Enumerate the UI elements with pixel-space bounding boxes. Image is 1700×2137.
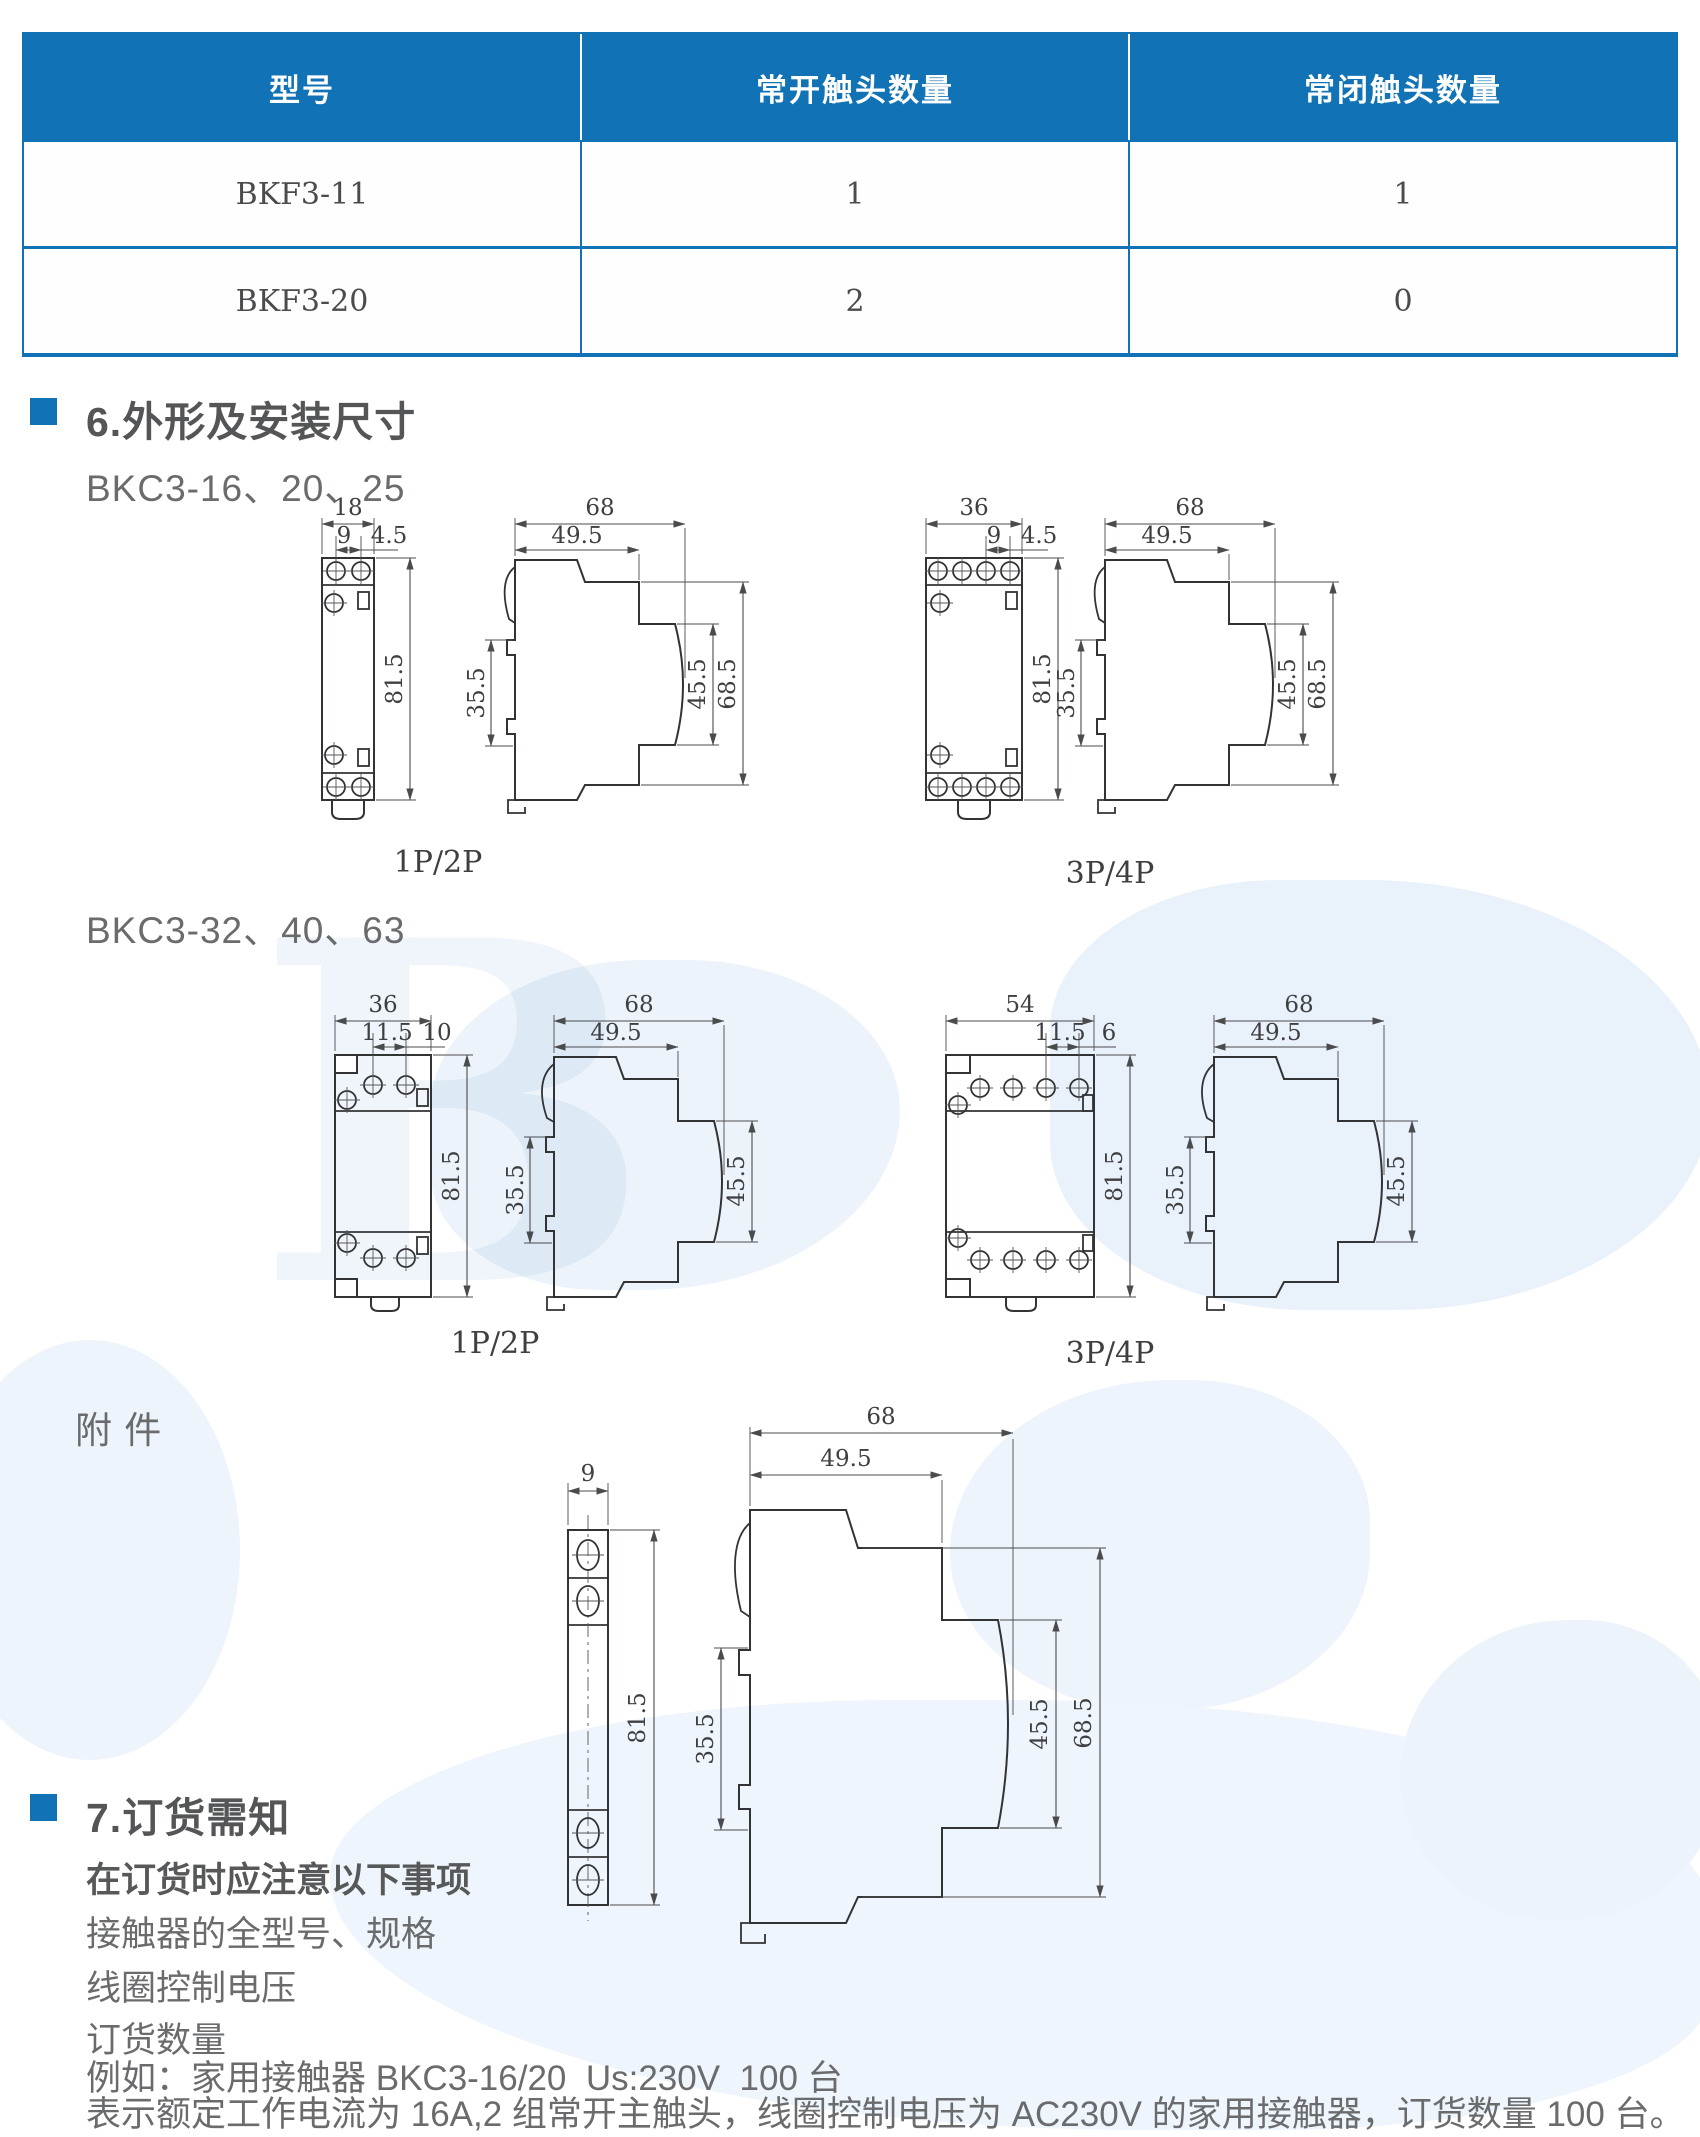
svg-text:45.5: 45.5	[1275, 658, 1301, 709]
section6-title: 6.外形及安装尺寸	[86, 388, 416, 448]
group1-label: BKC3-16、20、25	[86, 458, 405, 512]
table-row: BKF3-11 1 1	[24, 140, 1676, 246]
svg-text:81.5: 81.5	[382, 653, 408, 704]
contact-count-table: 型号 常开触头数量 常闭触头数量 BKF3-11 1 1 BKF3-20 2 0	[22, 32, 1678, 357]
svg-text:54: 54	[1005, 992, 1034, 1018]
svg-text:9: 9	[987, 523, 1002, 549]
svg-text:45.5: 45.5	[1384, 1155, 1410, 1206]
cell-no: 2	[582, 249, 1130, 353]
caption-3p4p: 3P/4P	[1035, 1336, 1185, 1371]
front-view: 54 11.5 6 81.5	[945, 992, 1136, 1311]
svg-text:35.5: 35.5	[1054, 667, 1080, 718]
header-nc-contacts: 常闭触头数量	[1130, 34, 1676, 140]
svg-text:68.5: 68.5	[1305, 658, 1331, 709]
svg-text:4.5: 4.5	[371, 523, 408, 549]
front-view: 36 9 4.5 81.5	[925, 495, 1064, 819]
drawing-bkc3-16-3p4p: 36 9 4.5 81.5 68 49.5 35.5 45.5 68.5	[890, 488, 1490, 848]
accessory-label: 附 件	[75, 1400, 162, 1454]
drawing-bkc3-32-1p2p: 36 11.5 10 81.5 68 49.5 35.5 45.5	[230, 965, 850, 1345]
svg-text:68: 68	[1284, 992, 1313, 1018]
table-header-row: 型号 常开触头数量 常闭触头数量	[24, 34, 1676, 140]
svg-text:49.5: 49.5	[1250, 1020, 1301, 1046]
svg-text:4.5: 4.5	[1021, 523, 1058, 549]
svg-text:49.5: 49.5	[590, 1020, 641, 1046]
svg-text:81.5: 81.5	[439, 1150, 465, 1201]
section6-bullet	[30, 398, 57, 425]
front-view: 18 9 4.5 81.5	[321, 495, 416, 819]
svg-text:45.5: 45.5	[685, 658, 711, 709]
caption-1p2p: 1P/2P	[363, 845, 513, 880]
svg-text:36: 36	[368, 992, 397, 1018]
ordering-item: 接触器的全型号、规格	[86, 1906, 436, 1957]
header-model: 型号	[24, 34, 582, 140]
svg-text:68.5: 68.5	[715, 658, 741, 709]
section7-bullet	[30, 1794, 57, 1821]
drawing-accessory: 9 81.5 68 49.5 35.5 45.5 68.5	[520, 1385, 1180, 1945]
cell-nc: 0	[1130, 249, 1676, 353]
table-row: BKF3-20 2 0	[24, 246, 1676, 353]
svg-text:10: 10	[422, 1020, 451, 1046]
svg-text:6: 6	[1102, 1020, 1117, 1046]
caption-1p2p: 1P/2P	[420, 1326, 570, 1361]
side-view: 68 49.5 35.5 45.5 68.5	[1054, 495, 1339, 813]
svg-text:9: 9	[581, 1461, 596, 1487]
group2-label: BKC3-32、40、63	[86, 900, 405, 954]
header-no-contacts: 常开触头数量	[582, 34, 1130, 140]
svg-text:45.5: 45.5	[724, 1155, 750, 1206]
svg-text:36: 36	[959, 495, 988, 521]
ordering-note-title: 在订货时应注意以下事项	[86, 1852, 471, 1903]
drawing-bkc3-16-1p2p: 18 9 4.5 81.5 68 49.5 35.5 45.5 68.5	[230, 488, 830, 848]
cell-model: BKF3-20	[24, 249, 582, 353]
svg-text:35.5: 35.5	[503, 1164, 529, 1215]
svg-text:68: 68	[866, 1404, 895, 1430]
front-view: 36 11.5 10 81.5	[334, 992, 473, 1311]
svg-text:49.5: 49.5	[1141, 523, 1192, 549]
svg-text:35.5: 35.5	[464, 667, 490, 718]
svg-text:49.5: 49.5	[820, 1446, 871, 1472]
ordering-explanation: 表示额定工作电流为 16A,2 组常开主触头，线圈控制电压为 AC230V 的家…	[86, 2086, 1685, 2137]
svg-text:35.5: 35.5	[693, 1713, 719, 1764]
cell-model: BKF3-11	[24, 142, 582, 246]
section7-title: 7.订货需知	[86, 1784, 290, 1844]
svg-text:68: 68	[585, 495, 614, 521]
svg-text:68: 68	[624, 992, 653, 1018]
cell-no: 1	[582, 142, 1130, 246]
watermark-shape	[1400, 1620, 1700, 1920]
svg-text:11.5: 11.5	[1034, 1020, 1085, 1046]
svg-text:11.5: 11.5	[361, 1020, 412, 1046]
svg-text:81.5: 81.5	[1102, 1150, 1128, 1201]
svg-text:68.5: 68.5	[1071, 1697, 1097, 1748]
caption-3p4p: 3P/4P	[1035, 856, 1185, 891]
svg-text:49.5: 49.5	[551, 523, 602, 549]
drawing-bkc3-32-3p4p: 54 11.5 6 81.5 68 49.5 35.5 45.5	[890, 965, 1530, 1345]
svg-text:35.5: 35.5	[1163, 1164, 1189, 1215]
cell-nc: 1	[1130, 142, 1676, 246]
ordering-item: 线圈控制电压	[86, 1960, 296, 2011]
side-view: 68 49.5 35.5 45.5 68.5	[464, 495, 749, 813]
side-view: 68 49.5 35.5 45.5 68.5	[693, 1404, 1106, 1943]
svg-text:9: 9	[337, 523, 352, 549]
svg-text:81.5: 81.5	[625, 1692, 651, 1743]
front-view: 9 81.5	[568, 1461, 660, 1921]
side-view: 68 49.5 35.5 45.5	[1163, 992, 1418, 1310]
svg-text:45.5: 45.5	[1027, 1698, 1053, 1749]
svg-text:81.5: 81.5	[1030, 653, 1056, 704]
side-view: 68 49.5 35.5 45.5	[503, 992, 758, 1310]
svg-text:68: 68	[1175, 495, 1204, 521]
